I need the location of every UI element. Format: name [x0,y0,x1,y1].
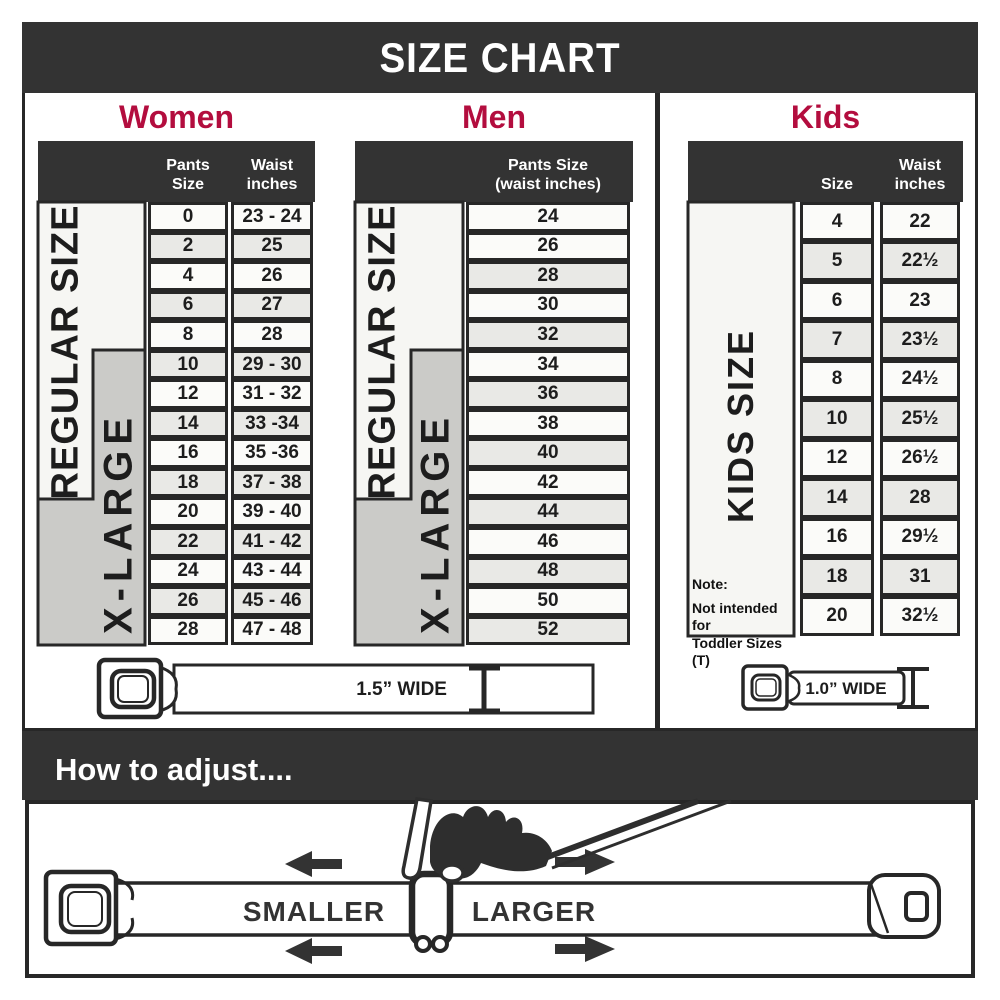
kids-table-row: 7 23½ [800,320,960,359]
kids-table-row: 10 25½ [800,399,960,438]
pants-size-cell: 26 [466,232,630,262]
men-table-header: Pants Size (waist inches) [355,141,633,202]
how-to-adjust-panel [25,800,975,978]
men-xlarge-label: X-LARGE [414,412,459,634]
larger-label: LARGER [462,896,606,928]
women-table-row: 14 33 -34 [148,409,313,439]
pants-size-cell: 50 [466,586,630,616]
kids-table-row: 4 22 [800,202,960,241]
how-to-adjust-heading: How to adjust.... [55,753,293,787]
women-col-waist: Waist inches [231,157,313,195]
men-table-row: 24 [466,202,630,232]
men-table-row: 36 [466,379,630,409]
size-cell: 6 [800,281,874,320]
pants-size-cell: 28 [466,261,630,291]
waist-inches-cell: 39 - 40 [231,497,313,527]
waist-inches-cell: 37 - 38 [231,468,313,498]
kids-heading: Kids [688,96,963,138]
men-size-table: 24 26 28 30 32 34 36 [466,202,630,645]
kids-col-waist: Waist inches [880,157,960,195]
size-chart-title-bar: SIZE CHART [22,22,978,93]
pants-size-cell: 42 [466,468,630,498]
women-table-header: Pants Size Waist inches [38,141,315,202]
waist-inches-cell: 32½ [880,596,960,635]
women-regular-size-label: REGULAR SIZE [45,205,88,500]
kids-table-row: 6 23 [800,281,960,320]
pants-size-cell: 0 [148,202,228,232]
waist-inches-cell: 26½ [880,439,960,478]
waist-inches-cell: 25½ [880,399,960,438]
waist-inches-cell: 27 [231,291,313,321]
men-table-row: 34 [466,350,630,380]
pants-size-cell: 38 [466,409,630,439]
waist-inches-cell: 23 [880,281,960,320]
men-table-row: 50 [466,586,630,616]
waist-inches-cell: 25 [231,232,313,262]
waist-inches-cell: 22½ [880,241,960,280]
size-cell: 7 [800,320,874,359]
men-table-row: 48 [466,557,630,587]
kids-table-row: 12 26½ [800,439,960,478]
waist-inches-cell: 43 - 44 [231,557,313,587]
women-table-row: 4 26 [148,261,313,291]
size-cell: 20 [800,596,874,635]
pants-size-cell: 30 [466,291,630,321]
size-cell: 5 [800,241,874,280]
women-table-row: 2 25 [148,232,313,262]
kids-table-row: 20 32½ [800,596,960,635]
adult-belt-width-label: 1.5” WIDE [287,679,447,701]
size-cell: 14 [800,478,874,517]
pants-size-cell: 52 [466,616,630,646]
pants-size-cell: 32 [466,320,630,350]
pants-size-cell: 14 [148,409,228,439]
waist-inches-cell: 22 [880,202,960,241]
kids-table-row: 8 24½ [800,360,960,399]
women-table-row: 6 27 [148,291,313,321]
waist-inches-cell: 28 [880,478,960,517]
men-table-row: 44 [466,497,630,527]
men-heading: Men [355,96,633,138]
waist-inches-cell: 31 [880,557,960,596]
kids-belt-width-label: 1.0” WIDE [800,679,892,699]
kids-size-table: 4 22 5 22½ 6 23 7 23½ 8 24½ [800,202,960,636]
men-table-row: 52 [466,616,630,646]
women-table-row: 16 35 -36 [148,438,313,468]
pants-size-cell: 18 [148,468,228,498]
women-table-row: 8 28 [148,320,313,350]
waist-inches-cell: 23½ [880,320,960,359]
men-table-row: 42 [466,468,630,498]
men-table-row: 46 [466,527,630,557]
pants-size-cell: 10 [148,350,228,380]
size-cell: 16 [800,518,874,557]
waist-inches-cell: 23 - 24 [231,202,313,232]
pants-size-cell: 20 [148,497,228,527]
pants-size-cell: 6 [148,291,228,321]
men-table-row: 32 [466,320,630,350]
page-title: SIZE CHART [379,34,620,82]
waist-inches-cell: 29½ [880,518,960,557]
pants-size-cell: 8 [148,320,228,350]
kids-table-header: Size Waist inches [688,141,963,202]
pants-size-cell: 22 [148,527,228,557]
men-regular-size-label: REGULAR SIZE [362,205,405,500]
pants-size-cell: 24 [466,202,630,232]
pants-size-cell: 4 [148,261,228,291]
men-table-row: 26 [466,232,630,262]
men-table-row: 30 [466,291,630,321]
smaller-label: SMALLER [240,896,388,928]
waist-inches-cell: 29 - 30 [231,350,313,380]
women-heading: Women [38,96,315,138]
waist-inches-cell: 45 - 46 [231,586,313,616]
pants-size-cell: 26 [148,586,228,616]
pants-size-cell: 40 [466,438,630,468]
waist-inches-cell: 31 - 32 [231,379,313,409]
kids-col-size: Size [800,176,874,195]
pants-size-cell: 48 [466,557,630,587]
men-col-pants-size: Pants Size (waist inches) [466,157,630,195]
waist-inches-cell: 35 -36 [231,438,313,468]
kids-size-label: KIDS SIZE [720,329,762,523]
women-table-row: 10 29 - 30 [148,350,313,380]
kids-note: Note: Not intended for Toddler Sizes (T) [692,576,794,670]
women-table-row: 24 43 - 44 [148,557,313,587]
size-cell: 12 [800,439,874,478]
size-cell: 4 [800,202,874,241]
women-table-row: 22 41 - 42 [148,527,313,557]
kids-table-row: 5 22½ [800,241,960,280]
pants-size-cell: 12 [148,379,228,409]
kids-table-row: 18 31 [800,557,960,596]
size-cell: 10 [800,399,874,438]
pants-size-cell: 46 [466,527,630,557]
men-table-row: 40 [466,438,630,468]
pants-size-cell: 28 [148,616,228,646]
size-chart-infographic: SIZE CHART How to adjust.... Women Men K… [0,0,1000,1000]
women-col-pants-size: Pants Size [148,157,228,195]
waist-inches-cell: 26 [231,261,313,291]
pants-size-cell: 34 [466,350,630,380]
men-table-row: 28 [466,261,630,291]
women-table-row: 0 23 - 24 [148,202,313,232]
pants-size-cell: 24 [148,557,228,587]
pants-size-cell: 16 [148,438,228,468]
kids-table-row: 16 29½ [800,518,960,557]
women-size-table: 0 23 - 24 2 25 4 26 6 27 8 28 [148,202,313,645]
women-table-row: 18 37 - 38 [148,468,313,498]
women-xlarge-label: X-LARGE [97,412,142,634]
men-table-row: 38 [466,409,630,439]
waist-inches-cell: 47 - 48 [231,616,313,646]
pants-size-cell: 44 [466,497,630,527]
women-table-row: 28 47 - 48 [148,616,313,646]
women-table-row: 26 45 - 46 [148,586,313,616]
kids-table-row: 14 28 [800,478,960,517]
waist-inches-cell: 33 -34 [231,409,313,439]
waist-inches-cell: 41 - 42 [231,527,313,557]
women-table-row: 12 31 - 32 [148,379,313,409]
women-table-row: 20 39 - 40 [148,497,313,527]
pants-size-cell: 36 [466,379,630,409]
size-cell: 8 [800,360,874,399]
size-cell: 18 [800,557,874,596]
panel-divider [655,93,660,731]
waist-inches-cell: 24½ [880,360,960,399]
pants-size-cell: 2 [148,232,228,262]
waist-inches-cell: 28 [231,320,313,350]
